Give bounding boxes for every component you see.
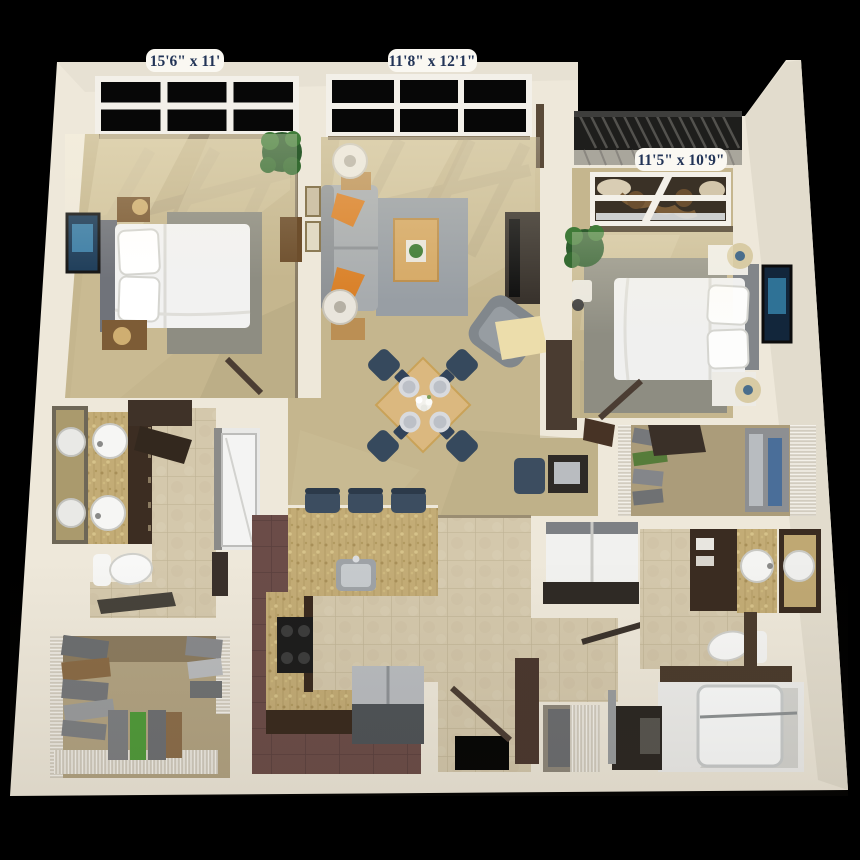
svg-text:11'5" x 10'9": 11'5" x 10'9" (638, 152, 725, 169)
svg-text:11'8" x 12'1": 11'8" x 12'1" (389, 53, 476, 70)
svg-text:15'6" x 11': 15'6" x 11' (150, 53, 221, 70)
